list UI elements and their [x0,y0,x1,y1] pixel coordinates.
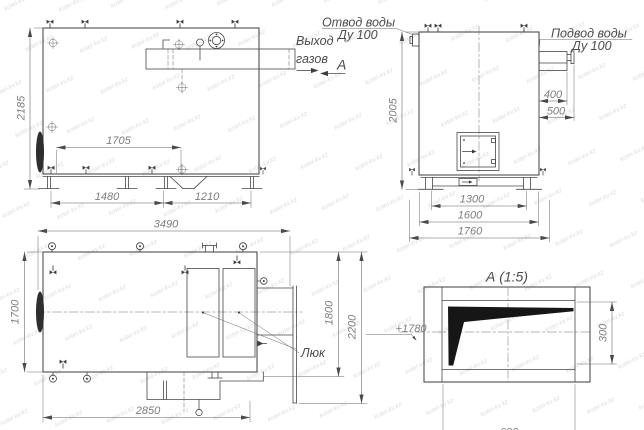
dim-base-outer: 1760 [458,226,483,238]
dim-front-inner: 1705 [106,135,131,147]
burner-flange-plan [36,292,44,333]
dim-elevation: +1780 [396,323,428,335]
dim-detail-height: 300 [598,323,610,342]
dim-base-mid: 1600 [458,210,483,222]
boiler-technical-drawing: kotel-kv.kz kotel-kv.kz [0,0,644,430]
water-inlet-label-line2: Ду 100 [570,39,612,53]
dim-front-base-left: 1480 [95,191,120,203]
hatch-label: Люк [300,346,326,360]
dim-detail-width: 600 [500,426,519,430]
dim-inlet-width: 400 [544,89,563,101]
dim-plan-bottom-length: 2850 [135,405,161,417]
dim-plan-width: 1700 [10,299,22,324]
gas-outlet-label-line2: газов [296,52,328,66]
burner-flange-front [36,132,44,173]
dim-side-height: 2005 [388,97,400,123]
dim-front-height: 2185 [16,95,28,121]
gas-outlet-label-line1: Выход [296,34,334,48]
dim-inlet-total: 500 [547,105,566,117]
dim-plan-right-inner: 1800 [324,300,336,325]
dim-plan-right-outer: 2200 [347,314,359,340]
detail-title: А (1:5) [485,269,528,285]
water-outlet-label-line2: Ду 100 [336,28,378,42]
dim-front-base-right: 1210 [195,191,220,203]
dim-base-inner: 1300 [460,194,485,206]
section-label: А [336,57,346,73]
dim-plan-length: 3490 [154,219,179,231]
